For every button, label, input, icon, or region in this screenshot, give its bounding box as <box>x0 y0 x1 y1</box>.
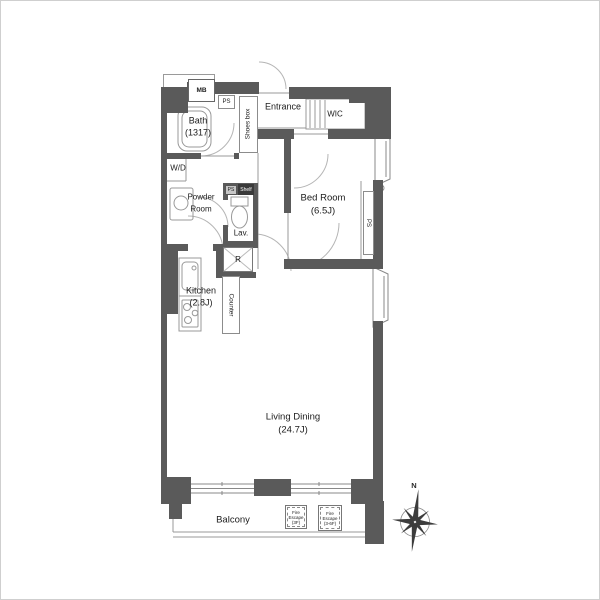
stove-burner-2 <box>192 310 198 316</box>
toilet-tank <box>231 197 248 206</box>
refrigerator-label: R <box>224 248 252 271</box>
wall-bath-south-b <box>234 153 239 159</box>
powder-room-label-1: Powder <box>187 193 214 202</box>
pipe-space-right-label: PS <box>365 219 371 227</box>
living-window-left <box>191 482 254 495</box>
stove-burner-3 <box>185 317 192 324</box>
washbasin-bowl <box>174 196 188 210</box>
meter-box-label: MB <box>189 80 214 101</box>
bath-size-label: (1317) <box>185 129 211 138</box>
fire-escape-1-line3: (3F) <box>292 520 300 525</box>
kitchen-size-label: (2.8J) <box>189 299 212 308</box>
compass-diagonal-points <box>390 497 441 548</box>
compass-points <box>387 487 444 555</box>
floorplan-canvas: N <box>0 0 600 600</box>
shelf-label: Shelf <box>239 185 253 194</box>
counter-label: Counter <box>228 293 235 316</box>
wic-label: WIC <box>327 110 343 119</box>
wall-balcony-left-nub <box>169 504 182 519</box>
pipe-space-top-label: PS <box>219 96 234 108</box>
fire-escape-hatch-2-inner: Fire Escape (3-6F) <box>320 507 340 529</box>
toilet-bowl <box>232 206 248 228</box>
wall-east-b <box>373 180 383 269</box>
pipe-space-mid-label: PS <box>226 186 236 194</box>
wall-lav-west-a <box>223 195 228 200</box>
wall-bath-south-a <box>161 153 201 159</box>
fire-escape-2-line3: (3-6F) <box>324 521 336 526</box>
wall-bedroom-south <box>284 259 373 269</box>
living-window-right <box>291 482 351 495</box>
fire-escape-hatch-1-inner: Fire Escape (3F) <box>287 507 305 527</box>
wall-kitchen-west <box>161 244 178 314</box>
wall-powder-south-b <box>213 244 223 251</box>
kitchen-faucet <box>192 266 196 270</box>
compass-needle-north <box>412 489 421 520</box>
wall-balcony-right <box>365 501 384 544</box>
bath-label: Bath <box>189 117 208 126</box>
powder-room-label-2: Room <box>190 205 211 214</box>
bedroom-size-label: (6.5J) <box>311 207 335 216</box>
refrigerator-box: R <box>223 247 253 272</box>
compass-needle-south <box>409 524 418 552</box>
fire-escape-hatch-2: Fire Escape (3-6F) <box>318 505 342 531</box>
pipe-space-top: PS <box>218 95 235 109</box>
wall-top-b <box>289 87 351 99</box>
shoes-box-label: Shoes box <box>245 109 252 140</box>
pipe-space-mid: PS <box>225 185 237 195</box>
meter-box: MB <box>188 79 215 102</box>
wall-bedroom-west <box>284 139 291 213</box>
bedroom-hall-door-arc <box>294 154 328 188</box>
wic-sliding-door-hatch <box>310 100 325 128</box>
entrance-label: Entrance <box>265 103 301 112</box>
shelf-box: Shelf <box>238 184 254 195</box>
washer-dryer-label: W/D <box>170 164 186 173</box>
wall-east-a <box>373 130 383 139</box>
living-bay-window <box>373 267 388 327</box>
balcony-label: Balcony <box>216 516 250 525</box>
wall-south-block-left <box>161 477 191 504</box>
bedroom-label: Bed Room <box>301 194 346 203</box>
entrance-door-arc <box>259 62 286 89</box>
living-dining-label: Living Dining <box>266 413 320 422</box>
bedroom-bay-window <box>375 132 390 186</box>
living-dining-size-label: (24.7J) <box>278 426 308 435</box>
compass-north-label: N <box>411 481 416 490</box>
wall-south-pillar-center <box>254 479 291 496</box>
fire-escape-hatch-1: Fire Escape (3F) <box>285 505 307 529</box>
compass-rose: N <box>387 481 444 554</box>
kitchen-label: Kitchen <box>186 287 216 296</box>
wall-east-c <box>373 321 383 488</box>
lav-label: Lav. <box>234 229 249 238</box>
